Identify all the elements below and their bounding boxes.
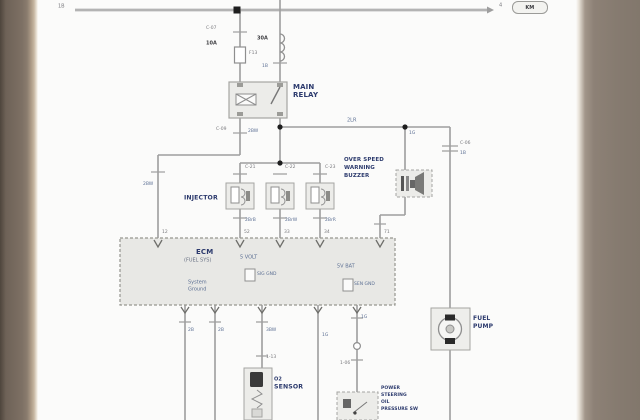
wiring-diagram-page: 1B 4 C-07 10A F13 30A 1B MAIN RELAY C-09…: [0, 0, 640, 420]
bottom-wire-code-4: 1G: [322, 333, 328, 338]
main-relay-label-1: MAIN: [293, 84, 314, 91]
ecm-5v-label: 5 VOLT: [240, 255, 257, 260]
frame-right-band: [576, 0, 640, 420]
ps-connector-code: 1-06: [340, 361, 350, 366]
frame-left-band: [0, 0, 38, 420]
buzzer-label-2: WARNING: [344, 165, 375, 171]
feed-wire-code: 2LR: [347, 118, 356, 123]
ps-switch-box: [337, 392, 378, 420]
page-reference-label: KM: [526, 5, 535, 11]
ps-label-4: PRESSURE SW: [381, 407, 418, 412]
injector-box-3: [306, 183, 334, 209]
injector1-wire-code: 2BrB: [245, 218, 256, 223]
bottom-wire-code-2: 2B: [218, 328, 224, 333]
inline-connector-icon: [354, 343, 361, 350]
ecm-pin-5: 71: [384, 230, 390, 235]
bottom-wire-code-5: 1G: [361, 315, 367, 320]
sensor-connector-code: 1-13: [266, 355, 276, 360]
relay-pin-connector: C-09: [216, 127, 226, 132]
bus-ref-note: 4: [499, 3, 502, 8]
ecm-title: ECM: [196, 249, 213, 256]
buzzer-wire-code: 1G: [409, 131, 415, 136]
injector-boxes: [226, 183, 334, 209]
ecm-ground-label-1: System: [188, 280, 207, 285]
o2-sensor-box: [244, 368, 272, 420]
bottom-wire-code-1: 2B: [188, 328, 194, 333]
ecm-ground-label-2: Ground: [188, 287, 206, 292]
injector2-wire-code: 2BrW: [285, 218, 297, 223]
fuel-pump-label-1: FUEL: [473, 316, 490, 322]
diagram-artwork: 1B 4 C-07 10A F13 30A 1B MAIN RELAY C-09…: [0, 0, 640, 420]
fuse-symbol: [235, 47, 246, 63]
injector-box-1: [226, 183, 254, 209]
injector3-connector: C-23: [325, 165, 335, 170]
bus-left-code: 1B: [58, 4, 65, 9]
injector-label: INJECTOR: [184, 195, 218, 202]
ecm-pin-1: 12: [162, 230, 168, 235]
injector-box-2: [266, 183, 294, 209]
ps-label-3: OIL: [381, 400, 390, 405]
fuel-pump-label-2: PUMP: [473, 324, 493, 330]
main-relay-box: [229, 82, 287, 118]
ecm-pin-3: 33: [284, 230, 290, 235]
main-relay-label-2: RELAY: [293, 92, 318, 99]
page-reference-box: KM: [512, 1, 548, 14]
buzzer-label-1: OVER SPEED: [344, 157, 384, 163]
fuse-rating: 10A: [206, 41, 217, 46]
ps-label-1: POWER: [381, 386, 400, 391]
injector3-wire-code: 2BrR: [325, 218, 336, 223]
injector1-connector: C-21: [245, 165, 255, 170]
link-wire-code: 1B: [262, 64, 268, 69]
ecm-bat-label: 5V BAT: [337, 264, 355, 269]
link-rating: 30A: [257, 36, 268, 41]
bottom-wire-code-3: 3BW: [266, 328, 276, 333]
sensor-label: SENSOR: [274, 384, 303, 391]
ecm-feed-wire-code: 2BW: [143, 182, 153, 187]
wires: [75, 0, 487, 420]
ecm-subtitle: (FUEL SYS): [184, 258, 211, 263]
fuse-connector-code: C-07: [206, 26, 216, 31]
buzzer-label-3: BUZZER: [344, 173, 369, 179]
pump-wire-code: 1B: [460, 151, 466, 156]
ecm-sig-gnd-label: SIG GND: [257, 272, 276, 277]
wiring-diagram-graphics: [0, 0, 640, 420]
fuse-id: F13: [249, 51, 257, 56]
ecm-pin-4: 34: [324, 230, 330, 235]
sensor-label-prefix: O2: [274, 377, 282, 382]
pump-connector-code: C-06: [460, 141, 470, 146]
fuel-pump-box: [431, 308, 470, 350]
ecm-pin-2: 52: [244, 230, 250, 235]
ecm-sen-gnd-label: SEN GND: [354, 282, 375, 287]
buzzer-box: [396, 170, 432, 197]
relay-pin-wire-code: 2BW: [248, 129, 258, 134]
injector2-connector: C-22: [285, 165, 295, 170]
ps-label-2: STEERING: [381, 393, 407, 398]
bus-arrow-icon: [487, 7, 494, 14]
